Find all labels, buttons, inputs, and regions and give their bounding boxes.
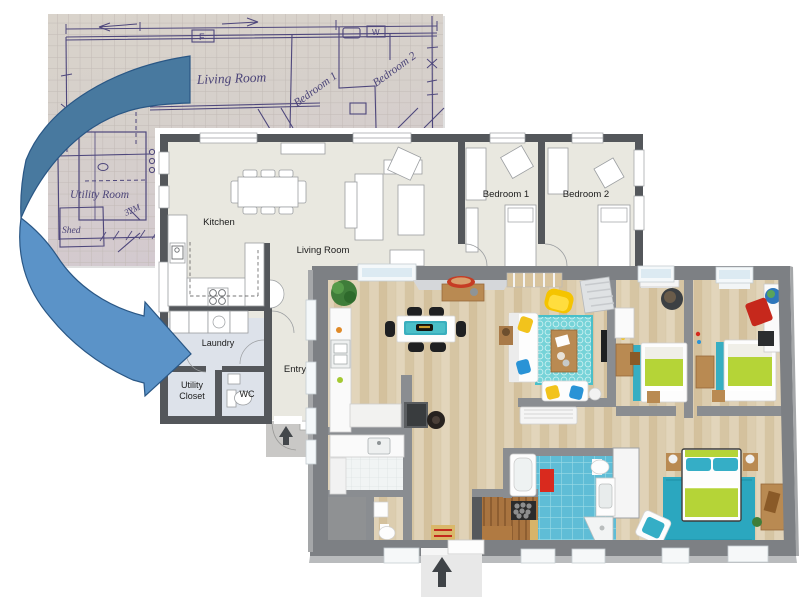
svg-text:Utility Room: Utility Room	[70, 189, 129, 201]
svg-text:Living Room: Living Room	[297, 245, 350, 256]
svg-text:Entry: Entry	[284, 364, 306, 375]
svg-text:Bedroom 2: Bedroom 2	[563, 189, 609, 200]
svg-text:Bedroom 1: Bedroom 1	[483, 189, 529, 200]
svg-text:WC: WC	[240, 389, 255, 399]
svg-text:Utility: Utility	[181, 380, 203, 390]
svg-text:Shed: Shed	[62, 226, 81, 236]
svg-text:W: W	[372, 28, 380, 37]
svg-text:F: F	[199, 32, 205, 42]
svg-text:Living Room: Living Room	[196, 70, 267, 87]
svg-text:Kitchen: Kitchen	[203, 217, 235, 228]
svg-text:Closet: Closet	[179, 391, 205, 401]
svg-text:Laundry: Laundry	[202, 338, 235, 348]
